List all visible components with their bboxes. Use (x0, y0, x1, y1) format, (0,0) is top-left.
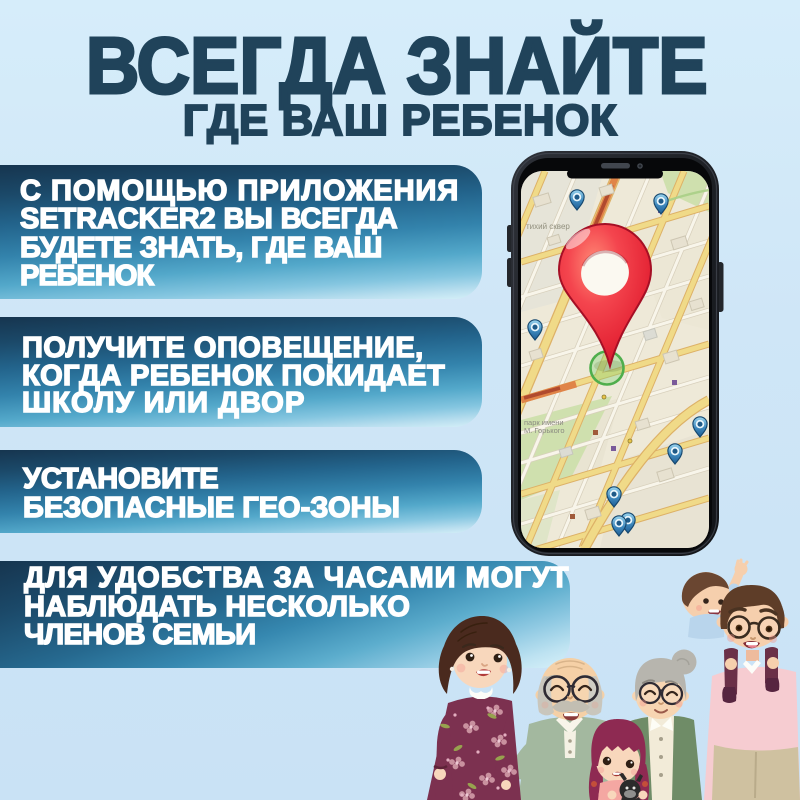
svg-text:тихий сквер: тихий сквер (526, 222, 570, 231)
svg-text:М. Горького: М. Горького (524, 426, 565, 435)
